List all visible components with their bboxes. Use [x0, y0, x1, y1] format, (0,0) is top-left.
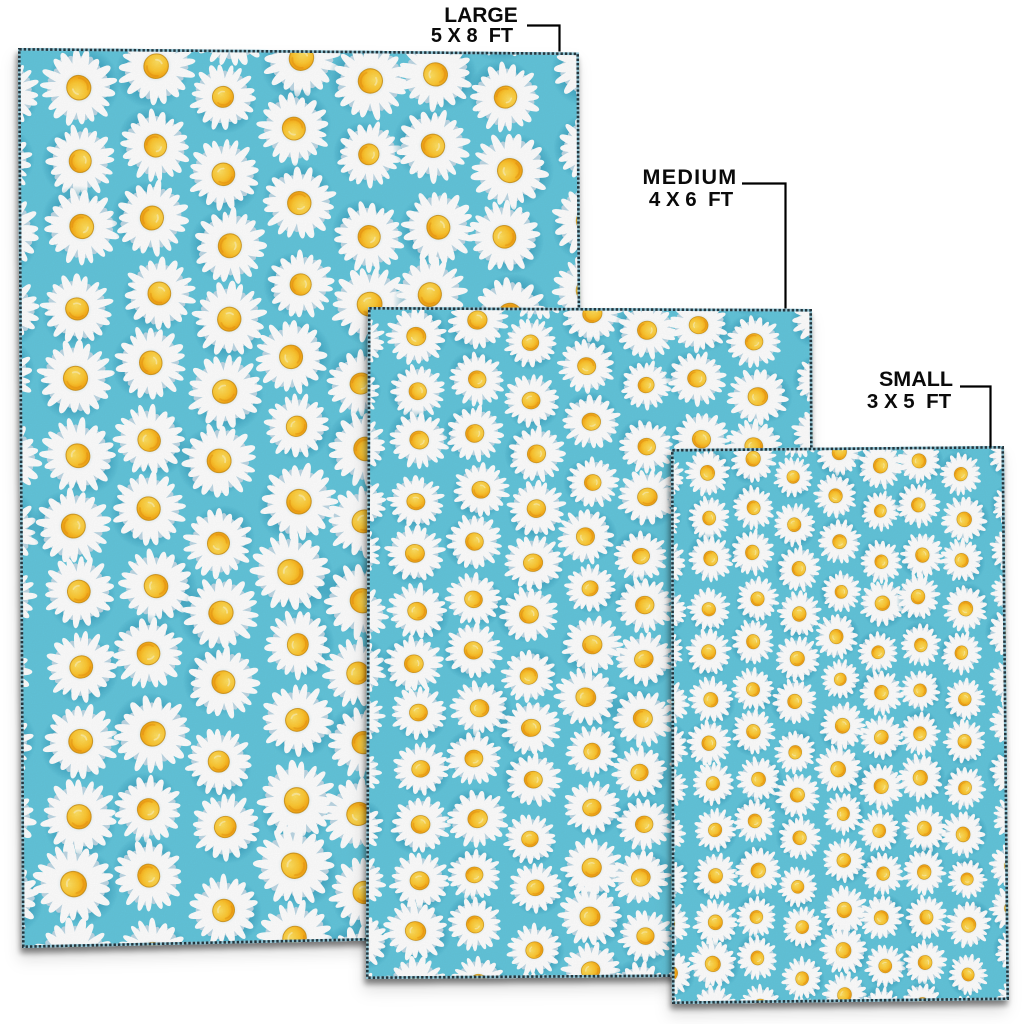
- svg-text:4 X 6 FT: 4 X 6 FT: [649, 188, 734, 211]
- svg-text:SMALL: SMALL: [879, 367, 953, 391]
- svg-text:LARGE: LARGE: [444, 4, 518, 27]
- svg-text:3 X 5 FT: 3 X 5 FT: [867, 390, 952, 413]
- svg-text:5 X 8 FT: 5 X 8 FT: [431, 25, 513, 47]
- svg-text:MEDIUM: MEDIUM: [643, 165, 738, 189]
